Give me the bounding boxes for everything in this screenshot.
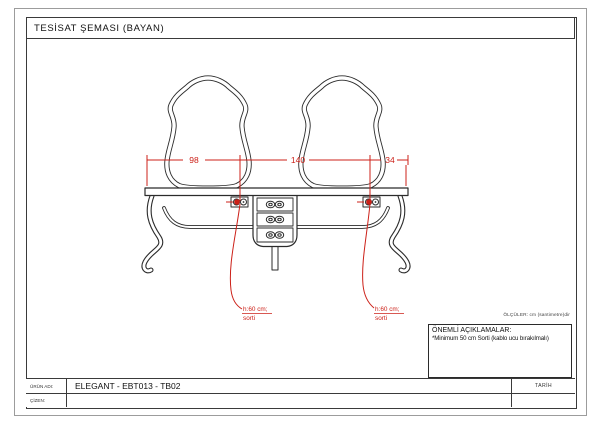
product-name-label: ÜRÜN ADI: [26,379,67,394]
important-notes-text: *Minimum 50 cm Sorti (kablo ucu bırakılm… [432,335,568,342]
date-value [512,394,575,407]
title-block: ÜRÜN ADI: ELEGANT - EBT013 - TB02 TARİH … [26,378,575,407]
drawn-by-value [67,394,512,407]
drawing-title: TESİSAT ŞEMASI (BAYAN) [26,17,575,39]
product-name-value: ELEGANT - EBT013 - TB02 [67,379,512,394]
important-notes-box: ÖNEMLİ AÇIKLAMALAR: *Minimum 50 cm Sorti… [428,324,572,378]
units-note: ÖLÇÜLER: cm (santimetre)dir [432,313,570,318]
date-label: TARİH [512,379,575,394]
important-notes-heading: ÖNEMLİ AÇIKLAMALAR: [432,327,568,334]
drawn-by-label: ÇİZEN: [26,394,67,407]
